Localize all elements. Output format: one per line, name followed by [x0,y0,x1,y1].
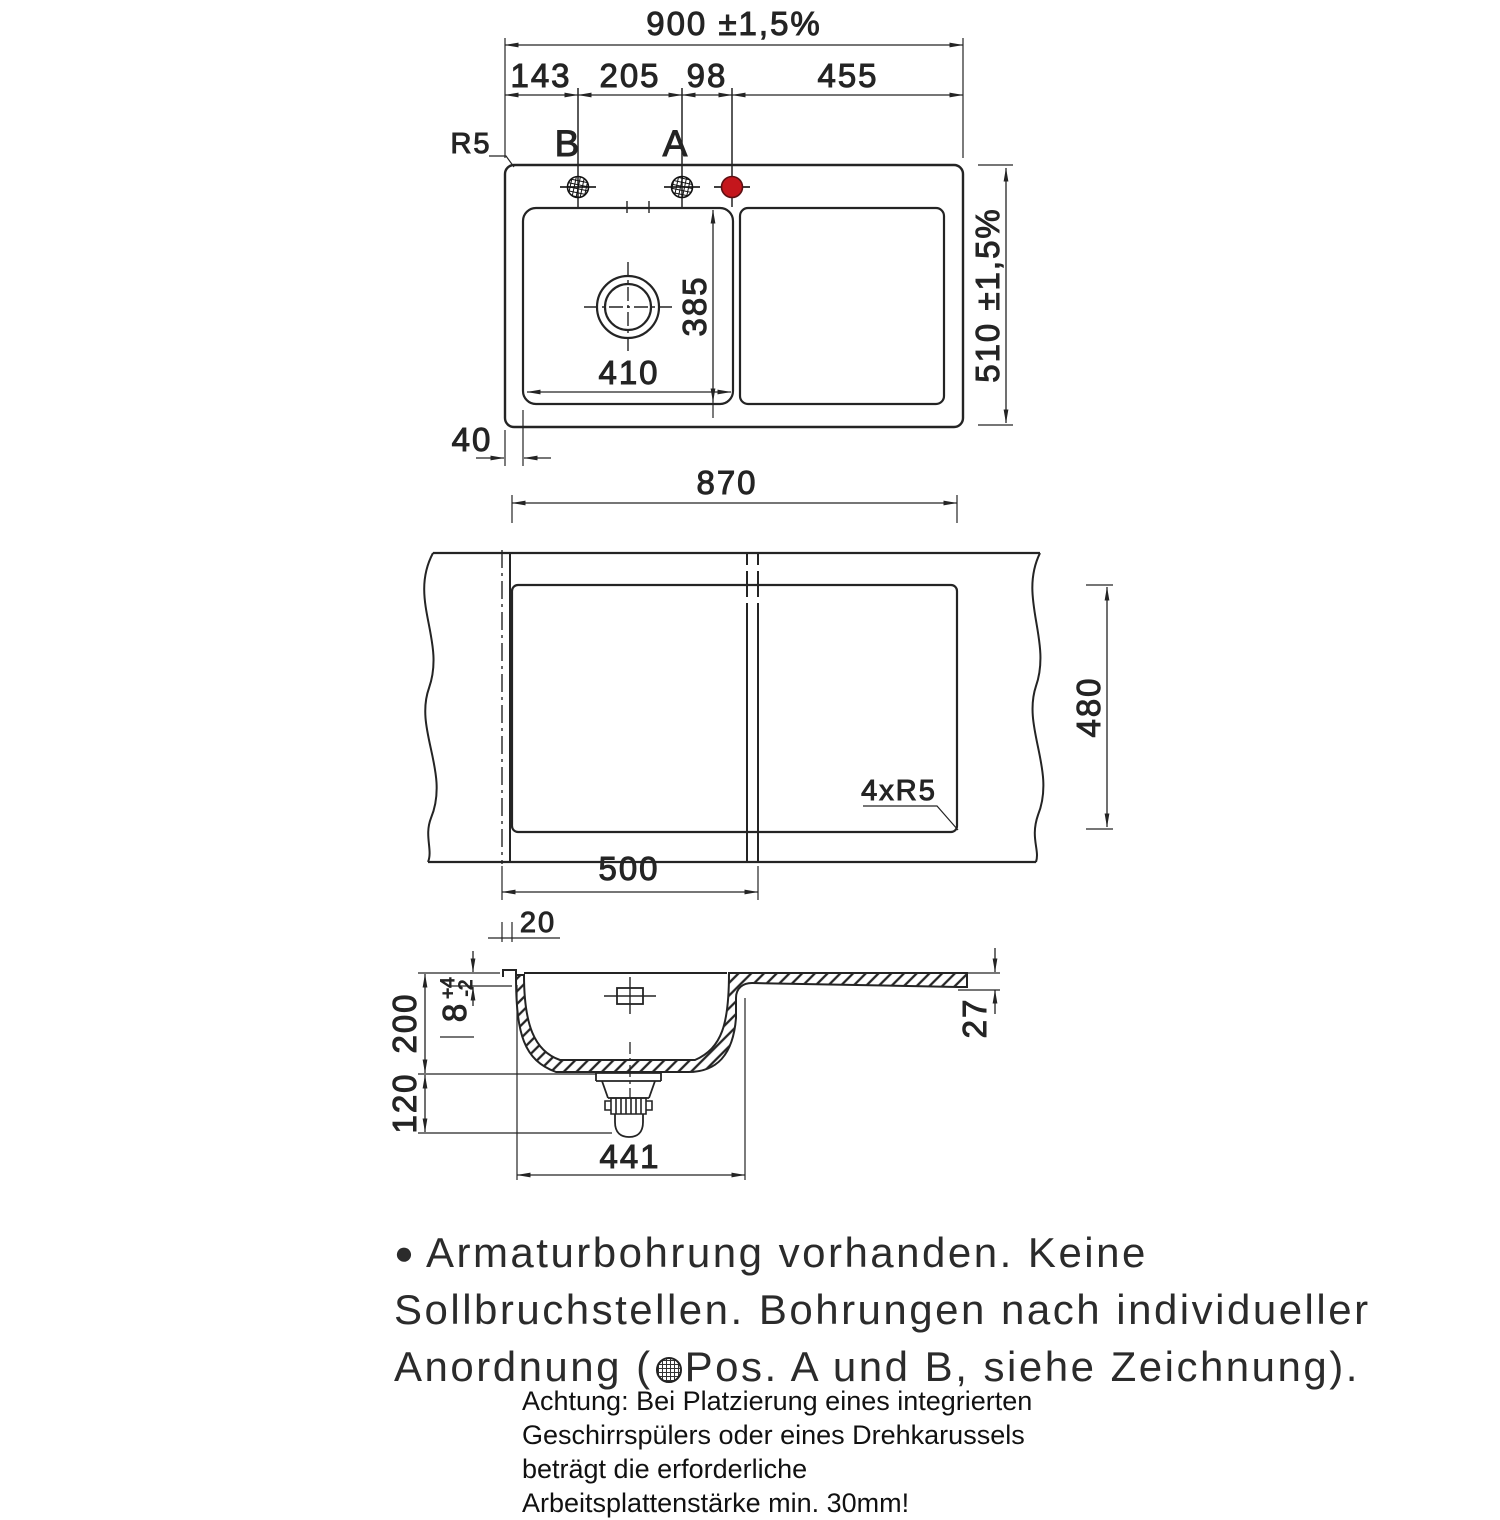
label-corner-radius: 4xR5 [861,775,937,807]
drill-position-icon [656,1357,682,1383]
tap-hole-red-icon [722,177,743,198]
drain-tailpiece [615,1114,643,1137]
notes-line-1: ●Armaturbohrung vorhanden. Keine [394,1224,1371,1281]
notes-block: ●Armaturbohrung vorhanden. Keine Sollbru… [394,1224,1371,1395]
tap-hole-a-icon [672,177,693,198]
label-hole-a: A [663,123,690,164]
drain-flange [596,1073,661,1081]
dim-label-20: 20 [520,907,556,939]
section-view: 200 120 8 +4 -2 441 27 [386,948,1000,1180]
dim-label-200: 200 [386,992,423,1053]
warning-line-4: Arbeitsplattenstärke min. 30mm! [522,1486,1032,1520]
dim-label-441: 441 [599,1138,660,1175]
countertop-edges [428,553,1040,862]
drain-cup [602,1081,655,1098]
dim-label-8-minus: -2 [456,980,477,997]
dim-label-480: 480 [1070,676,1107,737]
top-view-extension-lines [505,38,1013,466]
tap-hole-b-icon [568,177,589,198]
warning-line-2: Geschirrspülers oder eines Drehkarussels [522,1418,1032,1452]
notes-line-1-text: Armaturbohrung vorhanden. Keine [426,1229,1148,1276]
label-hole-b: B [555,123,582,164]
dim-label-8-tolerance: 8 +4 -2 [436,977,477,1022]
top-view: 900 ±1,5% 143 205 98 455 R5 B A 385 410 … [450,5,1013,466]
bullet-icon: ● [394,1234,414,1271]
section-left-lip [503,970,516,977]
warning-line-3: beträgt die erforderliche [522,1452,1032,1486]
dim-label-143: 143 [510,57,571,94]
countertop-broken-edge-left [424,553,436,862]
label-r5: R5 [450,128,491,160]
section-extension-lines [418,973,1000,1180]
faucet-hole-crosshair [604,977,656,1014]
corner-radius-leader-line [863,806,958,830]
dim-label-870: 870 [696,464,757,501]
sink-drainboard [740,208,944,404]
drain-nut [605,1098,652,1114]
dim-label-40: 40 [452,421,493,458]
dim-label-900: 900 ±1,5% [646,5,822,42]
notes-line-2: Sollbruchstellen. Bohrungen nach individ… [394,1281,1371,1338]
warning-line-1: Achtung: Bei Platzierung eines integrier… [522,1384,1032,1418]
cabinet-divider-lines [747,553,758,862]
dim-label-98: 98 [687,57,728,94]
dim-label-205: 205 [599,57,660,94]
dim-label-27: 27 [956,998,993,1039]
dim-label-455: 455 [817,57,878,94]
notes-line-3-post: Pos. A und B, siehe Zeichnung). [685,1343,1360,1390]
cutout-view: 870 480 4xR5 500 20 [424,464,1113,942]
countertop-broken-edge-right [1032,553,1043,862]
cutout-extension-lines [488,495,1113,942]
dim-label-410: 410 [598,354,659,391]
section-body [516,973,967,1072]
notes-line-3-pre: Anordnung ( [394,1343,653,1390]
dim-label-120: 120 [386,1072,423,1133]
dim-label-8: 8 [436,1002,473,1022]
hole-centerlines [578,88,732,207]
dim-label-500: 500 [598,850,659,887]
dim-label-510: 510 ±1,5% [969,207,1006,383]
dim-label-385: 385 [676,275,713,336]
